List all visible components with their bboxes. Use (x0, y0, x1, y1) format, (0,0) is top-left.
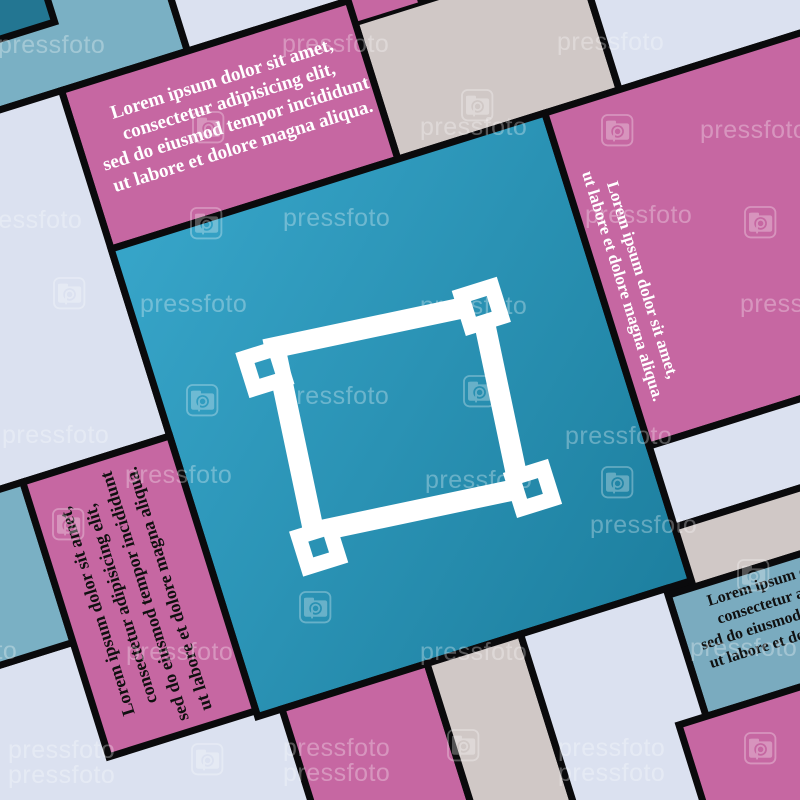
svg-text:pressfoto: pressfoto (282, 382, 389, 410)
svg-text:pressfoto: pressfoto (420, 292, 527, 320)
svg-text:pressfoto: pressfoto (126, 638, 233, 666)
svg-text:pressfoto: pressfoto (283, 759, 390, 787)
svg-text:pressfoto: pressfoto (0, 206, 82, 234)
svg-text:pressfoto: pressfoto (558, 759, 665, 787)
svg-text:pressfoto: pressfoto (0, 31, 105, 59)
svg-text:pressfoto: pressfoto (420, 638, 527, 666)
svg-text:pressfoto: pressfoto (700, 116, 800, 144)
svg-text:pressfoto: pressfoto (558, 734, 665, 762)
svg-text:pressfoto: pressfoto (690, 634, 797, 662)
svg-text:pressfoto: pressfoto (140, 290, 247, 318)
svg-text:pressfoto: pressfoto (740, 290, 800, 318)
svg-text:pressfoto: pressfoto (557, 28, 664, 56)
svg-text:pressfoto: pressfoto (0, 637, 17, 665)
svg-text:pressfoto: pressfoto (585, 201, 692, 229)
svg-text:pressfoto: pressfoto (283, 734, 390, 762)
svg-text:pressfoto: pressfoto (125, 461, 232, 489)
svg-text:pressfoto: pressfoto (420, 113, 527, 141)
svg-text:pressfoto: pressfoto (8, 736, 115, 764)
svg-text:pressfoto: pressfoto (283, 204, 390, 232)
svg-text:pressfoto: pressfoto (425, 466, 532, 494)
svg-text:pressfoto: pressfoto (2, 421, 109, 449)
svg-text:pressfoto: pressfoto (282, 30, 389, 58)
svg-text:pressfoto: pressfoto (565, 422, 672, 450)
svg-text:pressfoto: pressfoto (590, 511, 697, 539)
svg-text:pressfoto: pressfoto (8, 761, 115, 789)
